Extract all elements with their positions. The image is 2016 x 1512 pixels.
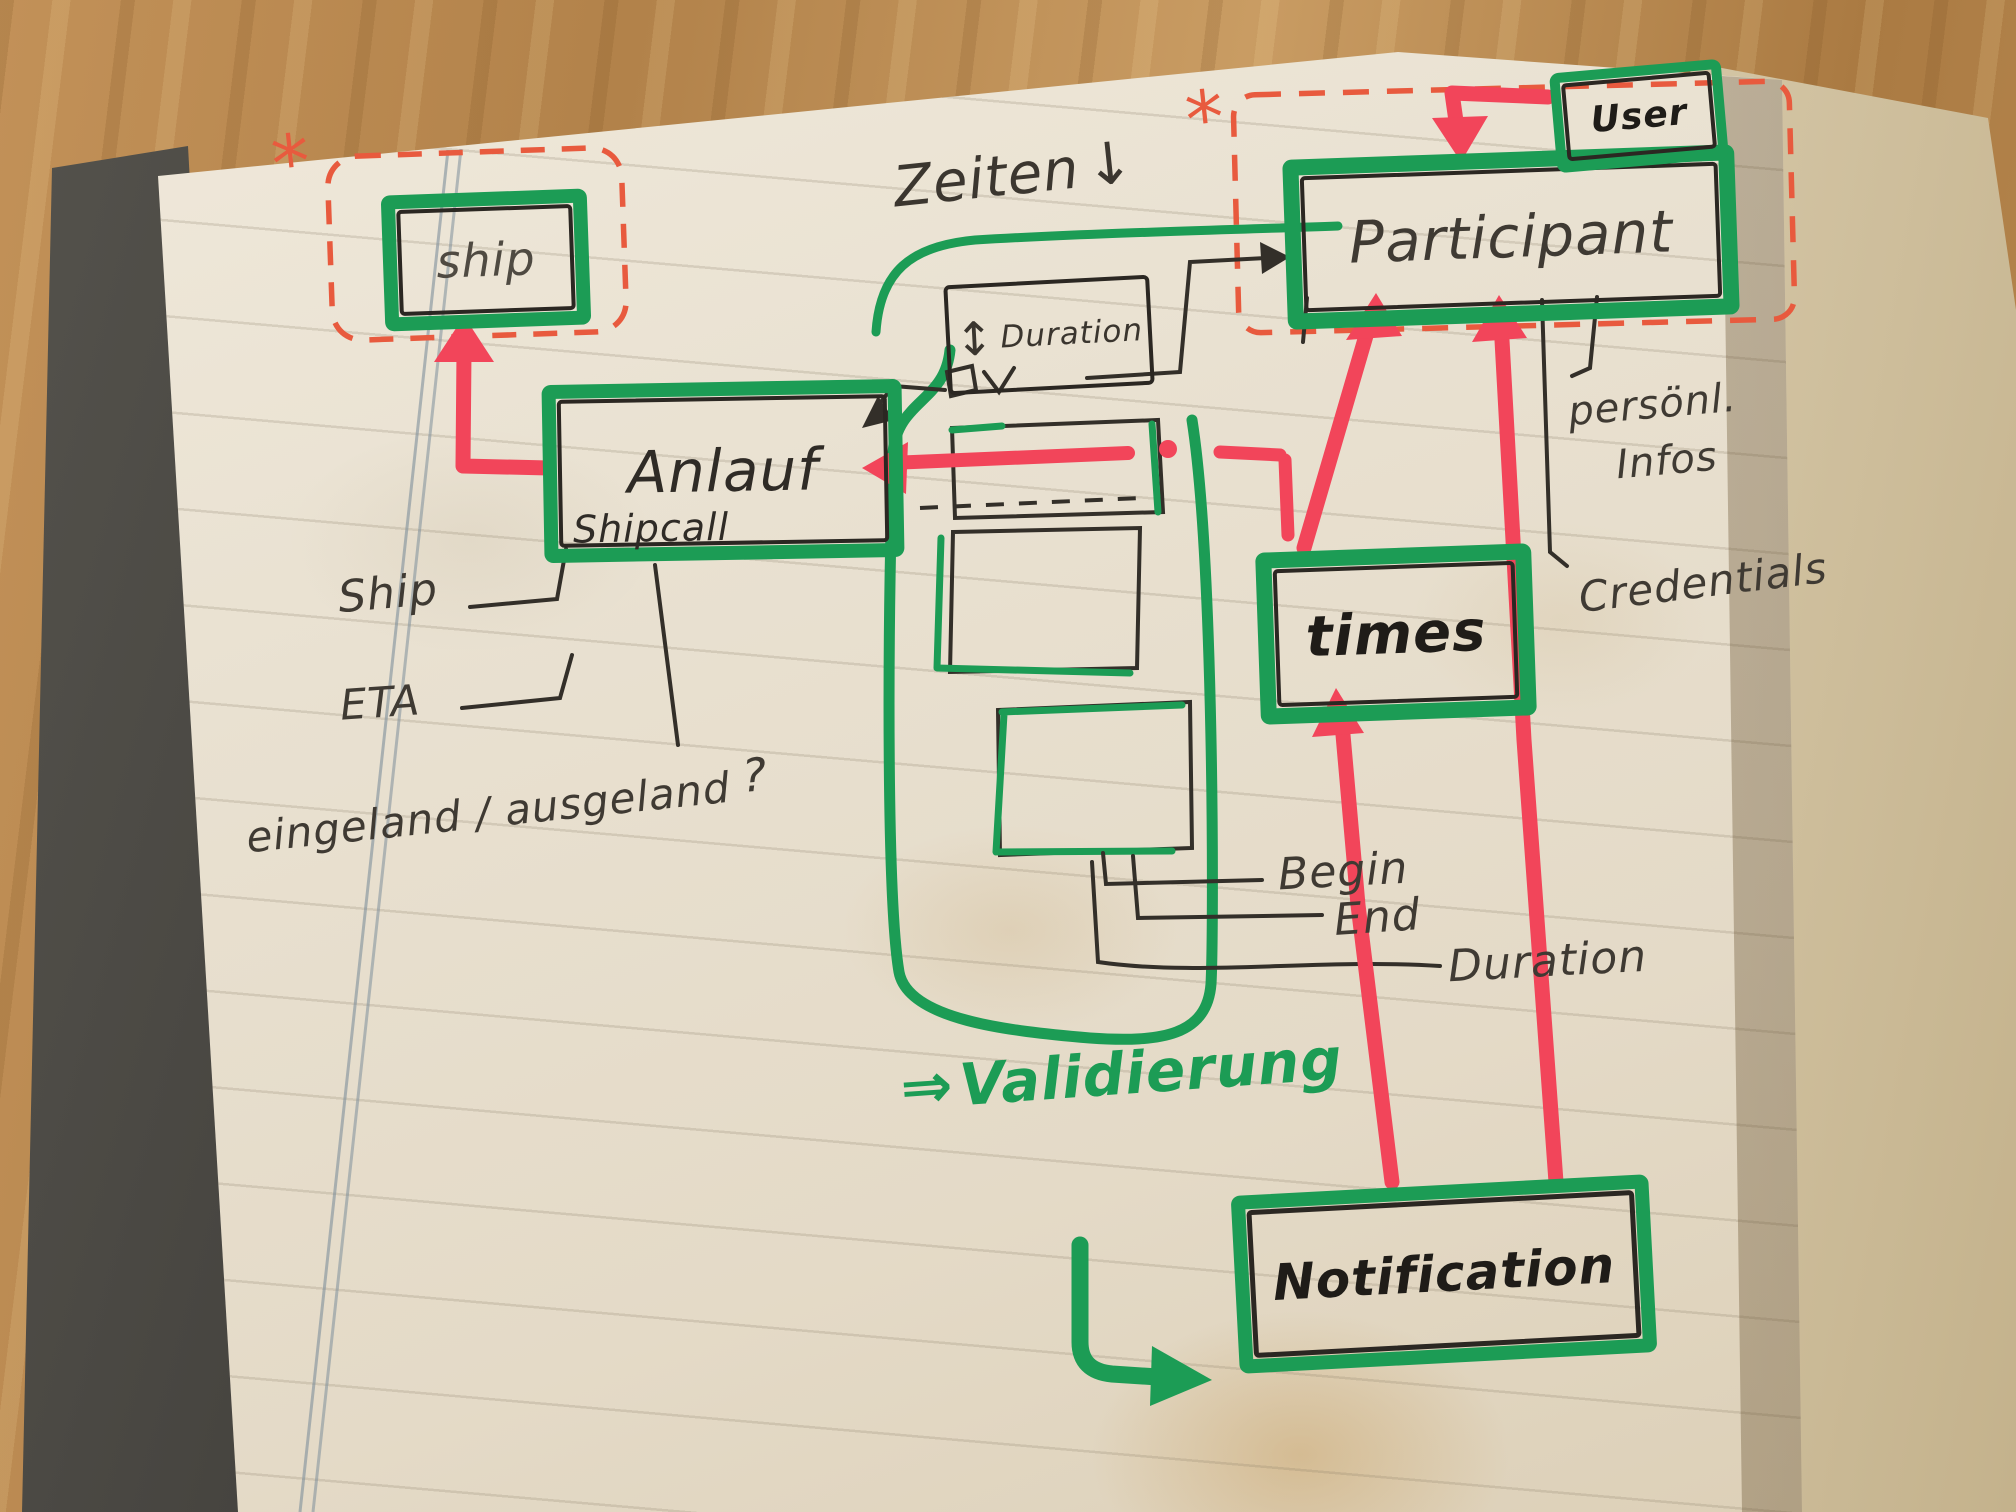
participant-box-inner: Participant [1300, 162, 1722, 313]
notification-box: Notification [1231, 1174, 1658, 1374]
ship-box-inner: ship [396, 204, 576, 316]
times-box-inner: times [1273, 561, 1520, 707]
notebook-photo: ship Anlauf Shipcall ↕ Duration Particip… [0, 0, 2016, 1512]
ship-box-label: ship [436, 231, 537, 288]
anlauf-box-label: Anlauf [627, 435, 819, 506]
times-to-anlauf-dash-1 [1285, 460, 1288, 535]
begin-attr-line [1103, 853, 1262, 884]
anlauf-to-ship-arrow [463, 352, 549, 468]
notification-to-times-arrow [1341, 712, 1392, 1182]
validation-to-notification-arrow [1080, 1245, 1158, 1377]
time-slot-box-2 [950, 528, 1140, 672]
anlauf-box: Anlauf Shipcall [541, 379, 904, 563]
times-to-participant-arrow [1304, 322, 1370, 548]
user-box-inner: User [1561, 71, 1717, 162]
persoenl-label-line2: Infos [1614, 434, 1719, 489]
duration-box-label: Duration [1000, 312, 1144, 355]
user-box: User [1549, 59, 1729, 174]
duration-attr-label: Duration [1447, 931, 1649, 992]
credentials-attr-line [1542, 300, 1567, 566]
time-slot-box-2-marker [937, 538, 1130, 673]
inout-question-mark: ? [740, 747, 769, 803]
ship-attr-label: Ship [336, 564, 440, 624]
participant-box-label: Participant [1348, 197, 1674, 276]
notification-box-inner: Notification [1246, 1190, 1641, 1358]
notification-box-label: Notification [1271, 1236, 1616, 1312]
duration-box: ↕ Duration [943, 275, 1154, 396]
down-arrow-icon: ↓ [1081, 128, 1137, 201]
times-box: times [1255, 543, 1537, 725]
end-label: End [1332, 889, 1422, 946]
participant-box: Participant [1282, 144, 1740, 330]
eta-attr-label: ETA [338, 675, 421, 729]
times-to-anlauf-dash-2 [1220, 452, 1280, 455]
user-box-label: User [1589, 91, 1689, 140]
double-arrow-icon: ⇒ [898, 1048, 956, 1125]
time-slot-box-3 [998, 702, 1192, 855]
times-to-anlauf-dash-3 [890, 453, 1128, 463]
ship-box: ship [381, 188, 592, 331]
anlauf-box-sublabel: Shipcall [573, 505, 730, 552]
anlauf-box-inner: Anlauf Shipcall [557, 394, 890, 548]
inout-attr-line [655, 565, 678, 745]
time-slot-box-3-marker [996, 705, 1182, 852]
duration-updown-arrow-icon: ↕ [954, 311, 996, 367]
times-box-label: times [1305, 598, 1488, 669]
times-to-anlauf-dash-dot [1159, 440, 1177, 458]
eta-attr-line [462, 655, 572, 708]
validation-to-notification-arrowhead [1150, 1346, 1212, 1406]
